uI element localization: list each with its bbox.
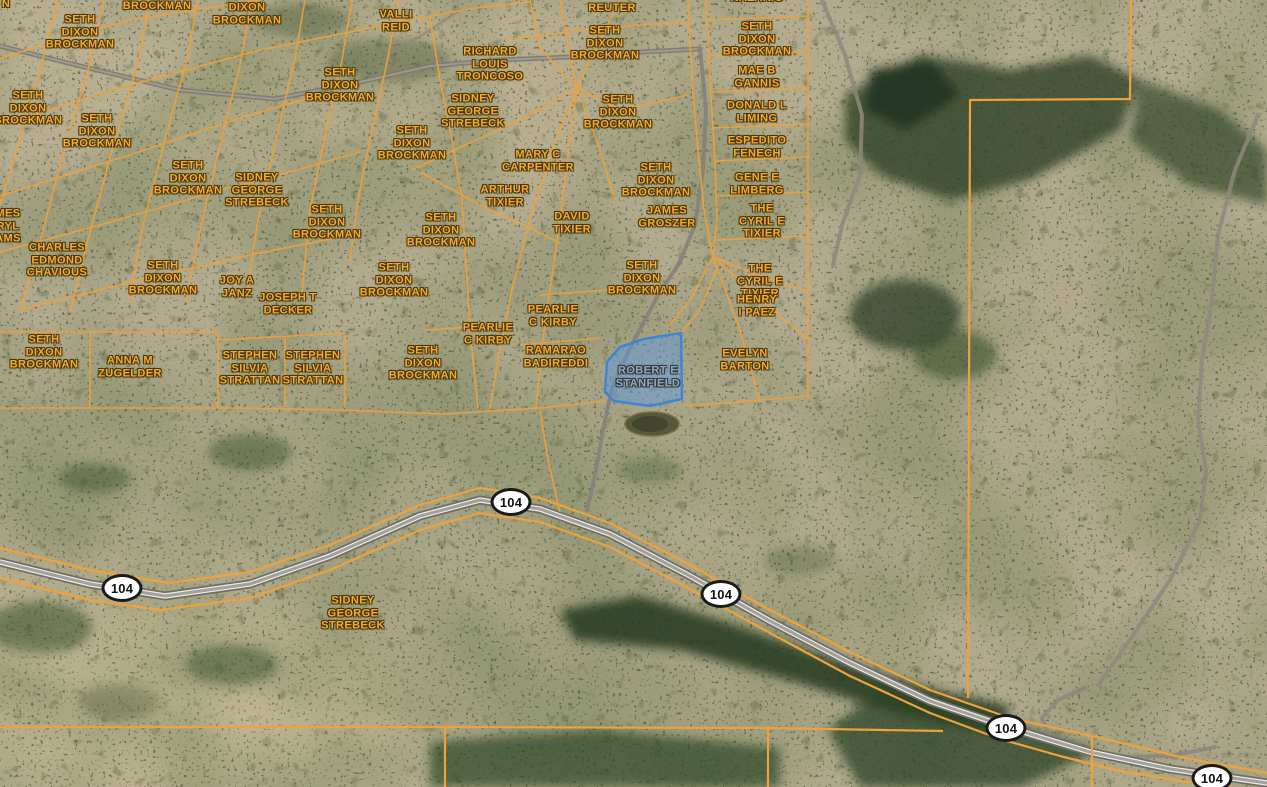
parcel-owner-label: SETH DIXON BROCKMAN: [154, 159, 223, 197]
parcel-owner-label: JOSEPH T DECKER: [259, 292, 317, 317]
map-canvas[interactable]: NBROCKMANDIXON BROCKMANSETH DIXON BROCKM…: [0, 0, 1267, 787]
parcel-owner-label: THE CYRIL E TIXIER: [739, 202, 785, 240]
highway-route-shield: 104: [986, 714, 1027, 742]
parcel-owner-label: JAMES GROSZER: [638, 205, 695, 230]
parcel-owner-label: SETH DIXON BROCKMAN: [407, 211, 476, 249]
parcel-owner-label: SETH DIXON BROCKMAN: [63, 112, 132, 150]
parcel-owner-label: RICHARD LOUIS TRONCOSO: [457, 45, 524, 83]
selected-parcel-owner-label: ROBERT E STANFIELD: [616, 365, 681, 390]
parcel-owner-label: DONALD L LIMING: [727, 100, 787, 125]
parcel-owner-label: STEPHEN SILVIA STRATTAN: [220, 349, 281, 387]
parcel-owner-label: STEPHEN SILVIA STRATTAN: [283, 349, 344, 387]
parcel-owner-label: BROCKMAN: [123, 0, 192, 12]
parcel-owner-label: SETH DIXON BROCKMAN: [0, 89, 62, 127]
highway-route-shield: 104: [102, 574, 143, 602]
parcel-owner-label: SETH DIXON BROCKMAN: [608, 259, 677, 297]
highway-route-shield: 104: [491, 488, 532, 516]
parcel-owner-label: JOY A JANZ: [220, 275, 254, 300]
parcel-owner-label: SETH DIXON BROCKMAN: [293, 203, 362, 241]
parcel-owner-label: MAE B GANNIS: [734, 65, 779, 90]
parcel-owner-label: REUTER: [588, 2, 636, 15]
parcel-owner-label: PEARLIE C KIRBY: [528, 304, 578, 329]
parcel-owner-label: ESPEDITO FENECH: [728, 135, 787, 160]
parcel-owner-label: CHARLES EDMOND CHAVIOUS: [27, 241, 87, 279]
parcel-owner-label: ARTHUR TIXIER: [481, 184, 530, 209]
parcel-owner-label: VALLI REID: [380, 9, 413, 34]
parcel-owner-label: SETH DIXON BROCKMAN: [723, 20, 792, 58]
parcel-owner-label: SETH DIXON BROCKMAN: [129, 259, 198, 297]
parcel-owner-label: PEARLIE C KIRBY: [463, 322, 513, 347]
parcel-owner-label: RAMARAO BADIREDDI: [524, 345, 589, 370]
highway-route-shield: 104: [1192, 764, 1233, 787]
parcel-owner-label: SETH DIXON BROCKMAN: [306, 66, 375, 104]
parcel-owner-label: SIDNEY GEORGE STREBECK: [441, 92, 505, 130]
parcel-owner-label-partial: N: [2, 0, 10, 10]
parcel-owner-label: EVELYN BARTON: [720, 348, 769, 373]
parcel-owner-label: GENE E LIMBERG: [730, 172, 784, 197]
parcel-owner-label: SETH DIXON BROCKMAN: [389, 344, 458, 382]
parcel-owner-label: SIDNEY GEORGE STREBECK: [321, 594, 385, 632]
parcel-owner-label: DIXON BROCKMAN: [213, 2, 282, 27]
parcel-owner-label-partial: MES RYL AMS: [0, 207, 21, 245]
label-layer: NBROCKMANDIXON BROCKMANSETH DIXON BROCKM…: [0, 0, 1267, 787]
parcel-owner-label: SETH DIXON BROCKMAN: [360, 261, 429, 299]
highway-route-shield: 104: [701, 580, 742, 608]
parcel-owner-label: HENRY I PAEZ: [737, 294, 777, 319]
parcel-owner-label: SIDNEY GEORGE STREBECK: [225, 171, 289, 209]
parcel-owner-label: DAVID TIXIER: [553, 211, 591, 236]
parcel-owner-label: SETH DIXON BROCKMAN: [378, 124, 447, 162]
parcel-owner-label: SETH DIXON BROCKMAN: [10, 333, 79, 371]
parcel-owner-label: ANNA M ZUGELDER: [98, 355, 162, 380]
parcel-owner-label: SETH DIXON BROCKMAN: [622, 161, 691, 199]
parcel-owner-label: SETH DIXON BROCKMAN: [46, 13, 115, 51]
parcel-owner-label: SETH DIXON BROCKMAN: [571, 24, 640, 62]
parcel-owner-label: NAZARIO: [731, 0, 784, 4]
parcel-owner-label: SETH DIXON BROCKMAN: [584, 93, 653, 131]
parcel-owner-label: MARY C CARPENTER: [502, 149, 574, 174]
